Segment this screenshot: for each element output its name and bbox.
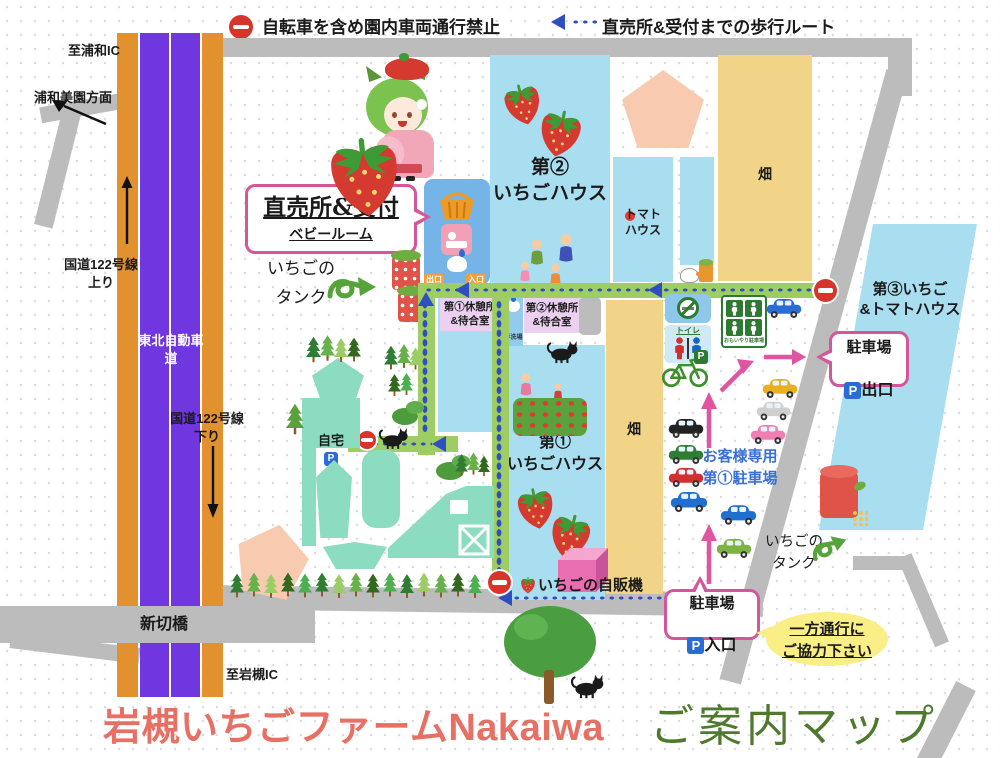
tree-icon [400, 371, 413, 397]
tank-leaf-top [391, 250, 421, 261]
house2-label: 第② いちごハウス [492, 155, 608, 206]
mascot-eye [407, 112, 412, 118]
walk-route-dots [424, 287, 828, 293]
misono-direction-arrow [50, 96, 112, 128]
strawberry-bush-icon [513, 398, 587, 436]
field-bottom-area [606, 300, 663, 594]
duck-icon [680, 268, 699, 283]
tank-top [820, 465, 858, 478]
tree-icon [332, 573, 346, 599]
entrance-text: 入口 [704, 637, 736, 654]
tree-icon [451, 570, 465, 599]
car-icon [716, 536, 752, 560]
baby-room-icon [441, 224, 472, 255]
rest-area1-label: 第①休憩所 &待合室 [440, 297, 500, 331]
house3-label: 第③いちご &トマトハウス [855, 280, 965, 321]
tree-icon [417, 570, 431, 599]
tree-icon [478, 454, 490, 478]
bucket-top [699, 259, 713, 266]
mascot-strawberry-hat [385, 58, 429, 80]
priority-parking-label: おもいやり駐車場 [723, 338, 765, 345]
tree-icon [434, 572, 448, 599]
pictogram-tile [726, 300, 743, 317]
car-icon [720, 502, 757, 527]
page-subtitle: ご案内マップ [650, 690, 938, 754]
route122-up-label: 国道122号線 上り [46, 256, 156, 291]
tree-icon [315, 570, 329, 599]
tree-icon [247, 570, 261, 599]
parking-entrance-callout: 駐車場 P入口 [664, 589, 760, 640]
parking-badge: P [844, 382, 861, 399]
baby-head-shape [448, 232, 456, 240]
house1-label: 第① いちごハウス [507, 432, 603, 475]
no-smoking-icon [677, 297, 699, 319]
one-way-arrow-icon [700, 392, 718, 452]
mascot-hat-leaf [399, 53, 409, 61]
no-smoking-sign [665, 294, 711, 323]
shinkiri-bridge-label: 新切橋 [140, 614, 188, 636]
tank-seeds [852, 510, 868, 526]
car-icon [762, 376, 798, 400]
pictogram-tile [745, 319, 762, 336]
tree-icon [347, 336, 361, 363]
shrub-icon [392, 408, 418, 425]
tomato-house-label: トマト ハウス [612, 206, 674, 238]
tree-icon [230, 572, 244, 599]
mascot-mouth [398, 121, 407, 127]
tomato-house-area-2 [680, 157, 714, 265]
field-top-label: 畑 [750, 165, 780, 184]
barn-icon [388, 484, 494, 558]
tree-icon [409, 346, 422, 371]
basket-icon [436, 186, 478, 222]
toilet-label: トイレ [665, 326, 711, 337]
car-icon [756, 399, 791, 422]
route-arrow-icon [551, 14, 565, 30]
mascot-foot [406, 176, 415, 181]
tree-icon [468, 573, 482, 599]
pictogram-tile [726, 319, 743, 336]
mascot-eye [392, 112, 397, 118]
rest-area2-label: 第②休憩所 &待合室 [524, 297, 580, 333]
tree-icon [264, 573, 278, 599]
tree-icon [281, 570, 295, 599]
handwash-icon [447, 256, 467, 272]
callout-pointer-inner [695, 582, 705, 593]
parking-entrance-line2: P入口 [667, 613, 757, 656]
picking-person-icon [518, 372, 534, 400]
home-strip [302, 448, 316, 546]
southbound-arrow [206, 446, 220, 518]
pictogram-tile [745, 300, 762, 317]
no-entry-icon [358, 431, 376, 449]
mascot-strawberry-icon [322, 130, 408, 222]
strawberry-tank-icon [820, 472, 858, 518]
northbound-arrow [120, 176, 134, 248]
car-icon [766, 296, 802, 320]
route-arrow-icon [432, 436, 446, 452]
cat-icon [546, 340, 580, 364]
canopy-highlight [514, 614, 548, 640]
callout-pointer-inner [413, 211, 425, 223]
tree-icon [400, 573, 414, 599]
no-entry-icon [814, 279, 837, 302]
one-way-arrow-icon [716, 354, 760, 394]
car-icon [668, 416, 704, 440]
vending-label: いちごの自販機 [538, 576, 643, 596]
to-iwatsuki-ic-label: 至岩槻IC [226, 666, 278, 684]
route-arrow-icon [455, 282, 469, 298]
bicycle-parking-badge: P [694, 350, 708, 364]
tree-icon [384, 344, 398, 371]
tree-icon [366, 572, 380, 599]
legend-walk-route: 直売所&受付までの歩行ルート [602, 17, 835, 40]
swirl-arrow-icon [324, 270, 380, 308]
water-drop-icon [459, 249, 465, 257]
no-entry-icon [229, 15, 253, 39]
customer-parking-label: お客様専用 第①駐車場 [690, 446, 790, 490]
priority-parking-sign: おもいやり駐車場 [721, 295, 767, 348]
bed-shape [446, 241, 467, 248]
shed-icon [579, 297, 601, 335]
tohoku-expressway-label: 東北自動車道 [134, 332, 208, 367]
one-way-bubble: 一方通行に ご協力下さい [766, 612, 888, 666]
one-way-label: 一方通行に ご協力下さい [766, 619, 888, 663]
tree-icon [349, 570, 363, 599]
parking-exit-line1: 駐車場 [832, 338, 906, 358]
farm-guide-map: 自転車を含め園内車両通行禁止 直売所&受付までの歩行ルート 至浦和IC 浦和美園… [0, 0, 1000, 758]
tree-icon [383, 570, 397, 599]
route122-down-label: 国道122号線 下り [152, 410, 262, 445]
route-dots-icon [571, 19, 597, 25]
parking-badge: P [687, 637, 704, 654]
parking-exit-line2: P出口 [832, 358, 906, 401]
walk-route-dots [496, 300, 502, 586]
exit-text: 出口 [861, 382, 893, 399]
parking-exit-callout: 駐車場 P出口 [829, 331, 909, 387]
big-tree-canopy [504, 606, 596, 678]
no-entry-icon [488, 571, 511, 594]
tree-icon [286, 400, 304, 438]
to-urawa-ic-label: 至浦和IC [68, 42, 120, 60]
strawberry-tank-icon [392, 256, 420, 290]
mascot-flower [417, 100, 426, 109]
strawberry-icon [520, 576, 536, 594]
field-bottom-label: 畑 [614, 420, 654, 439]
tree-icon [334, 337, 348, 363]
page-title: 岩槻いちごファームNakaiwa [103, 696, 604, 751]
walk-route-dots [422, 300, 428, 432]
tree-icon [320, 334, 335, 362]
tree-icon [306, 336, 321, 363]
home-label: 自宅 [318, 433, 344, 448]
bucket-icon [699, 263, 713, 282]
route-arrow-icon [648, 282, 662, 298]
legend-no-vehicles: 自転車を含め園内車両通行禁止 [262, 17, 500, 40]
route-arrow-icon [418, 292, 434, 306]
parking-entrance-line1: 駐車場 [667, 594, 757, 614]
car-icon [670, 489, 708, 514]
baby-room-label: ベビールーム [248, 225, 414, 244]
cat-icon [378, 428, 410, 449]
one-way-arrow-icon [762, 348, 808, 366]
car-icon [750, 422, 786, 446]
tree-icon [298, 572, 312, 599]
